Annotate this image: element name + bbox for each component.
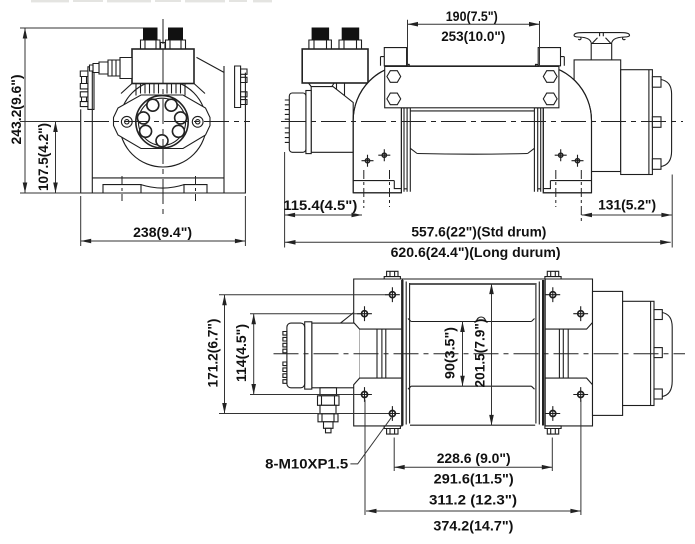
svg-text:311.2 (12.3"): 311.2 (12.3"): [429, 491, 517, 507]
svg-text:374.2(14.7"): 374.2(14.7"): [433, 518, 513, 534]
svg-text:228.6 (9.0"): 228.6 (9.0"): [437, 450, 511, 466]
svg-text:171.2(6.7"): 171.2(6.7"): [204, 319, 220, 388]
svg-text:201.5(7.9"): 201.5(7.9"): [472, 319, 488, 388]
svg-text:131(5.2"): 131(5.2"): [598, 197, 656, 213]
svg-text:253(10.0"): 253(10.0"): [441, 28, 505, 44]
svg-text:620.6(24.4")(Long durum): 620.6(24.4")(Long durum): [391, 244, 561, 260]
svg-text:291.6(11.5"): 291.6(11.5"): [434, 471, 514, 487]
svg-text:107.5(4.2"): 107.5(4.2"): [35, 123, 51, 191]
svg-text:115.4(4.5"): 115.4(4.5"): [283, 197, 357, 213]
svg-text:557.6(22")(Std drum): 557.6(22")(Std drum): [411, 224, 546, 240]
svg-text:243.2(9.6"): 243.2(9.6"): [8, 75, 24, 145]
svg-text:90(3.5"): 90(3.5"): [442, 327, 458, 379]
svg-text:238(9.4"): 238(9.4"): [133, 224, 192, 240]
svg-text:8-M10XP1.5: 8-M10XP1.5: [265, 455, 348, 471]
svg-text:190(7.5"): 190(7.5"): [446, 8, 498, 24]
svg-text:114(4.5"): 114(4.5"): [233, 324, 249, 382]
